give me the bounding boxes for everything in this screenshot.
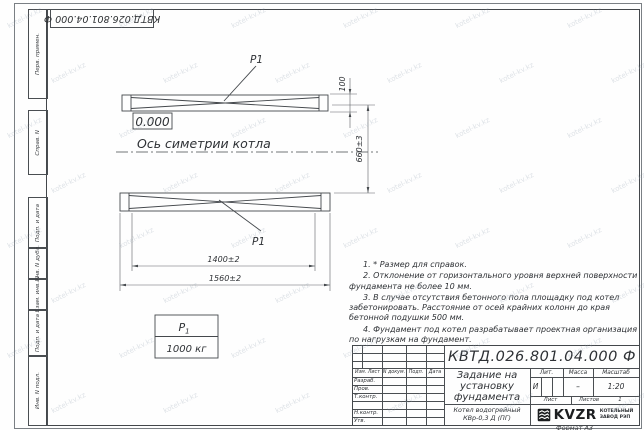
axis-label: Ось симетрии котла xyxy=(137,136,271,151)
leader-top-p1 xyxy=(224,66,256,101)
load-symbol: Р1 xyxy=(178,321,189,336)
dimension-lines xyxy=(120,78,375,291)
elevation-mark: 0.000 xyxy=(135,115,170,129)
dim-overall-length: 1560±2 xyxy=(209,274,241,283)
dim-rail-gap: 660±3 xyxy=(355,135,364,162)
support-label-bottom: Р1 xyxy=(252,236,265,248)
leader-bottom-p1 xyxy=(219,200,261,231)
dim-inner-length: 1400±2 xyxy=(207,255,239,264)
load-value: 1000 кг xyxy=(167,344,208,355)
foundation-plan-view: 0.000 Ось симетрии котла Р1 Р1 100 660±3… xyxy=(0,0,644,430)
support-label-top: Р1 xyxy=(250,54,263,66)
top-rail-outline xyxy=(122,95,328,111)
dim-rail-width: 100 xyxy=(338,76,347,91)
drawing-sheet: Перв. примен. Справ. N Подп. и дата Инв.… xyxy=(0,0,644,430)
bottom-rail-outline xyxy=(120,193,330,211)
